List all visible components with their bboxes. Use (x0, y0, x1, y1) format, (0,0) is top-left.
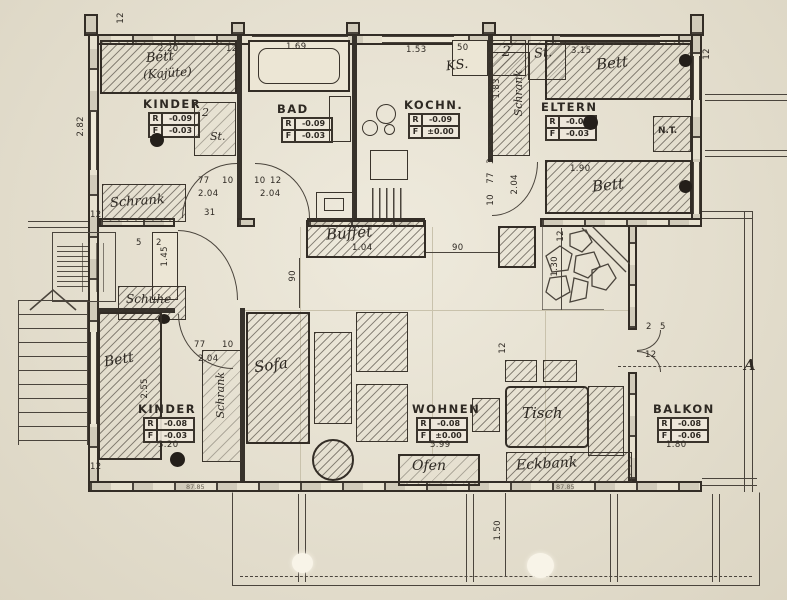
bad-sink (329, 96, 351, 142)
upper-balkon-line (705, 94, 787, 101)
rf-f: F (546, 128, 559, 140)
window (382, 36, 454, 43)
terrace-dim-line (505, 493, 506, 576)
ks-label: KS. (445, 57, 469, 75)
dim-90-h: 90 (452, 243, 464, 253)
punch-hole (150, 133, 164, 147)
kitchen-sink-bowl (376, 104, 396, 124)
exterior-stairs (18, 300, 88, 445)
balkon-railing-top (702, 211, 753, 219)
rf-table-bad: R-0.09 F-0.03 (281, 117, 333, 143)
wall-bottom (88, 481, 702, 492)
rf-f: F (409, 126, 422, 138)
rf-r: R (658, 418, 671, 430)
dim-2: 2 (646, 322, 652, 332)
punch-hole (679, 180, 692, 193)
dim-bad-w: 1.69 (286, 42, 307, 52)
schrank-eltern-label: Schrank (512, 70, 525, 116)
stool (472, 398, 500, 432)
section-line-a (618, 366, 742, 367)
room-label-kinder-top: KINDER (143, 97, 201, 111)
dim-balkon-w: 1.80 (666, 440, 687, 450)
dim-fire-h: 1.30 (550, 256, 560, 277)
rf-r: R (546, 116, 559, 128)
dim-door-w: 77 (486, 172, 496, 184)
dim-12: 12 (270, 176, 282, 186)
dim-12: 12 (702, 48, 712, 60)
dim-12: 12 (645, 350, 657, 360)
section-letter-a: A (744, 356, 756, 374)
rf-r: R (144, 418, 157, 430)
rf-f-val: ±0.00 (422, 126, 459, 138)
dim-5: 5 (660, 322, 666, 332)
dim-kinder-h: 2.82 (76, 116, 86, 137)
dim-door-f: 10 (222, 176, 234, 186)
log-stub (482, 22, 496, 36)
dim-31: 31 (204, 208, 216, 218)
tisch-label: Tisch (522, 404, 563, 422)
kitchen-sink-bowl (362, 120, 378, 136)
stool (505, 360, 537, 382)
dim-bett-eltern-top: 3.15 (571, 46, 592, 56)
dim-kinder-w: 3.20 (158, 440, 179, 450)
bathtub-inner (258, 48, 340, 84)
cabinet-2-label: 2 (202, 106, 209, 119)
floor-plan: Bett (Kajüte) 2.20 KINDER R-0.09 F-0.03 … (0, 0, 787, 600)
dim-bett-kinder: 2.55 (140, 378, 150, 399)
bad-wc-inner (324, 198, 344, 211)
room-label-wohnen: WOHNEN (412, 402, 480, 416)
dim-kochn-w: 1.53 (406, 45, 427, 55)
door-arc-balkon-upper (637, 330, 661, 351)
door-arc-entry (178, 230, 238, 300)
round-table (312, 439, 354, 481)
dim-door-2: 2.04 (198, 354, 219, 364)
eckbank-label: Eckbank (516, 454, 578, 473)
armchair (356, 312, 408, 372)
wall-stamp: 87.85 (556, 483, 575, 491)
punch-hole (170, 452, 185, 467)
dim-12: 12 (90, 210, 102, 220)
terrace-post (466, 494, 474, 582)
dim-door-f: 10 (486, 194, 496, 206)
dim-12: 12 (556, 230, 566, 242)
bett-eltern-bottom-label: Bett (591, 174, 625, 195)
cabinet-st-label: St. (210, 130, 225, 143)
nachttisch-label: N.T. (658, 126, 677, 136)
window (90, 332, 97, 424)
outside-line (28, 221, 88, 228)
flash-spot (527, 553, 554, 578)
upper-balkon-line (705, 150, 787, 157)
eckbank-side (588, 386, 624, 456)
flash-spot (292, 553, 313, 573)
chimney-flue (498, 226, 536, 268)
schrank-kinder-label: Schrank (214, 372, 227, 418)
kitchen-stove (370, 150, 408, 180)
dim-entry: 1.45 (160, 246, 170, 267)
coffee-table (314, 332, 352, 424)
kinder-top-cabinet (194, 102, 236, 156)
dim-90-v: 90 (288, 270, 298, 282)
rf-f-val: -0.03 (295, 130, 332, 142)
window (90, 112, 97, 170)
guide-line (245, 310, 628, 311)
log-stub (690, 14, 704, 36)
rf-r-val: -0.08 (430, 418, 467, 430)
dim-12: 12 (498, 342, 508, 354)
wall-bad-kochn (352, 36, 357, 218)
dim-kajuete: 2.20 (158, 44, 179, 54)
dim-door-f: 10 (254, 176, 266, 186)
stairs-direction-arrow (24, 286, 82, 312)
rf-f: F (417, 430, 430, 442)
dim-line-90v (299, 258, 300, 308)
room-label-bad: BAD (277, 102, 309, 116)
punch-hole (679, 54, 692, 67)
dim-door-w: 77 (194, 340, 206, 350)
wall-kinder-bad (237, 36, 242, 218)
balkon-railing-right (744, 212, 753, 492)
rf-r-val: -0.08 (671, 418, 708, 430)
rf-r: R (417, 418, 430, 430)
balkon-railing-bottom (702, 478, 757, 486)
rf-r-val: -0.09 (422, 114, 459, 126)
dim-door-2: 2.04 (198, 189, 219, 199)
dim-buffet: 1.04 (352, 243, 373, 253)
room-label-kochn: KOCHN. (404, 98, 463, 112)
dim-5: 5 (136, 238, 142, 248)
armchair (356, 384, 408, 442)
dim-door-2: 2.04 (260, 189, 281, 199)
ofen-label: Ofen (412, 458, 446, 474)
kitchen-burner (384, 124, 395, 135)
room-label-balkon: BALKON (653, 402, 715, 416)
stool (543, 360, 577, 382)
bett-eltern-top-label: Bett (595, 52, 629, 73)
terrace-post (712, 494, 720, 582)
punch-hole (583, 115, 598, 130)
window (693, 56, 700, 100)
dim-bett-eltern-bottom: 1.90 (570, 164, 591, 174)
dim-2: 2 (156, 238, 162, 248)
dim-door-2: 2.04 (510, 174, 520, 195)
terrace-inner-edge (240, 576, 752, 577)
window (693, 162, 700, 214)
kitchen-heater (372, 188, 402, 218)
dim-wohnen-l: 5.99 (430, 440, 451, 450)
terrace-post (610, 494, 618, 582)
dim-door-f: 10 (222, 340, 234, 350)
schuhe-label: Schuhe (126, 292, 171, 306)
sofa (246, 312, 310, 444)
rf-r-val: -0.08 (157, 418, 194, 430)
wall-stamp: 87.85 (186, 483, 205, 491)
rf-r-val: -0.09 (295, 118, 332, 130)
dim-schrank-eltern: 1.83 (492, 78, 502, 99)
room-label-kinder-bottom: KINDER (138, 402, 196, 416)
rf-r: R (409, 114, 422, 126)
rf-table-kochn: R-0.09 F±0.00 (408, 113, 460, 139)
log-stub (346, 22, 360, 36)
buffet-label: Buffet (325, 222, 372, 243)
dim-12: 12 (226, 44, 238, 54)
log-stub (231, 22, 245, 36)
dim-12: 12 (116, 12, 126, 24)
rf-r: R (282, 118, 295, 130)
dim-door-w: 77 (198, 176, 210, 186)
room-label-eltern: ELTERN (541, 100, 597, 114)
log-stub (84, 14, 98, 36)
rf-f: F (282, 130, 295, 142)
dim-ks: 50 (457, 43, 469, 53)
rf-r: R (149, 113, 162, 125)
rf-f: F (144, 430, 157, 442)
dim-12: 12 (90, 462, 102, 472)
dim-three: 3 (486, 158, 496, 164)
dim-terrace-d: 1.50 (493, 520, 503, 541)
wall-corridor-north-2 (237, 218, 255, 227)
